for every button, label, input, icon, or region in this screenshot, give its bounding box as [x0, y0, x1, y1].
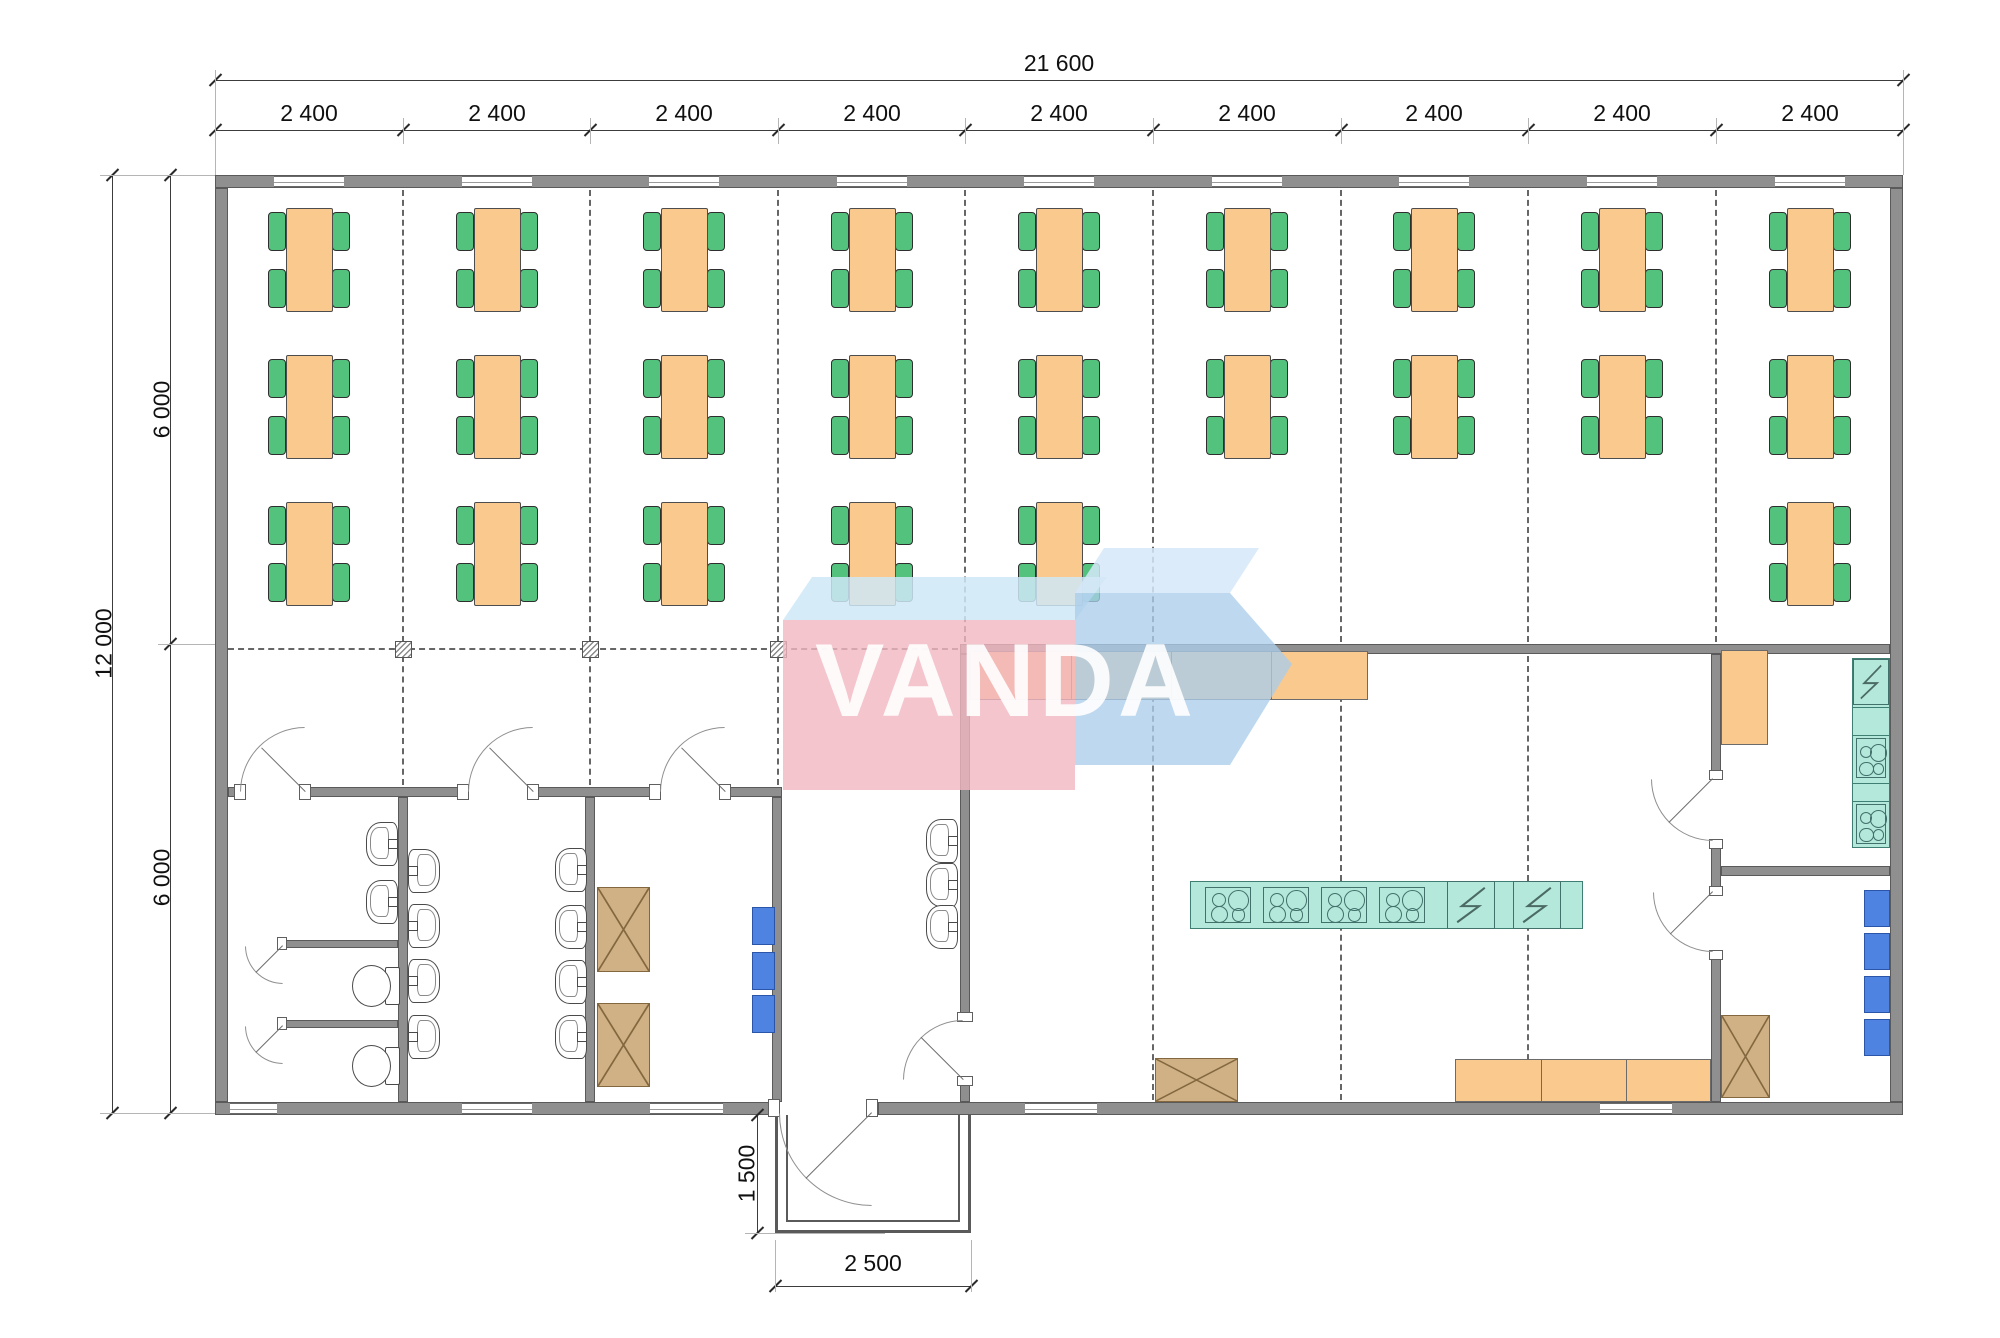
chair: [707, 563, 725, 602]
floor-plan-canvas: VANDA 21 600 12 000 6 000 6 000 1 500 2 …: [0, 0, 2000, 1338]
chair: [1018, 212, 1036, 251]
table: [1787, 355, 1834, 459]
table: [661, 355, 708, 459]
washbasin-icon: [366, 822, 396, 864]
chair: [1769, 506, 1787, 545]
dining-table-group: [643, 351, 725, 463]
chair: [332, 506, 350, 545]
table: [1224, 355, 1271, 459]
chair: [831, 416, 849, 455]
window: [1775, 176, 1845, 187]
table: [1036, 208, 1083, 312]
chair: [1082, 416, 1100, 455]
chair: [1457, 212, 1475, 251]
grid-line: [1340, 190, 1342, 642]
locker-icon: [1864, 933, 1890, 970]
wall: [1890, 188, 1903, 1102]
chair: [1833, 359, 1851, 398]
locker-icon: [1864, 976, 1890, 1013]
grid-line: [1340, 656, 1342, 1100]
wall: [305, 787, 463, 797]
chair: [520, 416, 538, 455]
dining-table-group: [643, 498, 725, 610]
dining-table-group: [1393, 204, 1475, 316]
chair: [1457, 359, 1475, 398]
window: [837, 176, 907, 187]
electric-appliance-icon: [1853, 659, 1889, 705]
cooktop-icon: [1321, 887, 1367, 923]
dimension-label-bay: 2 400: [812, 100, 932, 127]
chair: [643, 506, 661, 545]
grid-line: [964, 190, 966, 642]
washbasin-icon: [555, 1015, 585, 1057]
table: [1411, 355, 1458, 459]
dimension-porch-width: 2 500: [813, 1250, 933, 1277]
table: [1224, 208, 1271, 312]
dimension-label-bay: 2 400: [1562, 100, 1682, 127]
dimension-label-bay: 2 400: [1187, 100, 1307, 127]
dimension-guide: [215, 70, 216, 175]
cooktop-icon: [1856, 738, 1886, 778]
dining-table-group: [268, 498, 350, 610]
wall: [283, 940, 398, 948]
dimension-line: [215, 80, 1903, 81]
chair: [332, 269, 350, 308]
dining-table-group: [831, 204, 913, 316]
dimension-label-bay: 2 400: [249, 100, 369, 127]
dining-table-group: [268, 204, 350, 316]
table: [1411, 208, 1458, 312]
dining-table-group: [1769, 498, 1851, 610]
chair: [456, 563, 474, 602]
chair: [895, 506, 913, 545]
chair: [1833, 563, 1851, 602]
chair: [520, 506, 538, 545]
grid-line: [1527, 656, 1529, 1100]
table: [286, 355, 333, 459]
wall: [283, 1020, 398, 1028]
chair: [1769, 212, 1787, 251]
cooktop-icon: [1379, 887, 1425, 923]
grid-line: [589, 190, 591, 642]
window: [1587, 176, 1657, 187]
chair: [1270, 416, 1288, 455]
wall: [215, 188, 228, 1102]
chair: [707, 506, 725, 545]
dimension-guide: [158, 644, 215, 645]
dining-table-group: [268, 351, 350, 463]
dining-table-group: [456, 498, 538, 610]
washbasin-icon: [410, 959, 440, 1001]
table: [1036, 355, 1083, 459]
dimension-guide: [403, 118, 404, 144]
table: [661, 502, 708, 606]
chair: [1457, 269, 1475, 308]
chair: [1581, 269, 1599, 308]
chair: [268, 506, 286, 545]
window: [462, 1103, 532, 1114]
chair: [1645, 269, 1663, 308]
table: [1787, 208, 1834, 312]
chair: [895, 359, 913, 398]
dimension-overall-height: 12 000: [91, 594, 118, 694]
chair: [268, 212, 286, 251]
column-marker: [395, 641, 412, 658]
chair: [1581, 212, 1599, 251]
chair: [456, 212, 474, 251]
chair: [268, 416, 286, 455]
chair: [332, 416, 350, 455]
chair: [1833, 269, 1851, 308]
watermark-top-left-face: [783, 577, 1107, 620]
dimension-label-bay: 2 400: [1750, 100, 1870, 127]
chair: [1393, 359, 1411, 398]
table: [1787, 502, 1834, 606]
chair: [1270, 269, 1288, 308]
chair: [1769, 416, 1787, 455]
chair: [520, 212, 538, 251]
cooktop-icon: [1263, 887, 1309, 923]
dimension-guide: [100, 175, 170, 176]
chair: [1206, 359, 1224, 398]
table: [286, 208, 333, 312]
locker-icon: [1864, 1019, 1890, 1056]
grid-line: [402, 656, 404, 785]
table: [849, 355, 896, 459]
chair: [456, 359, 474, 398]
dimension-guide: [971, 1240, 972, 1292]
table: [1599, 355, 1646, 459]
chair: [1018, 359, 1036, 398]
chair: [1018, 416, 1036, 455]
dining-table-group: [456, 351, 538, 463]
chair: [643, 563, 661, 602]
wall: [1721, 866, 1890, 876]
electric-appliance-icon: [1513, 881, 1561, 929]
chair: [1581, 416, 1599, 455]
cabinet-icon: [1155, 1058, 1238, 1102]
cooktop-icon: [1205, 887, 1251, 923]
wall: [725, 787, 782, 797]
chair: [1645, 416, 1663, 455]
table: [1599, 208, 1646, 312]
chair: [643, 269, 661, 308]
chair: [831, 212, 849, 251]
toilet-icon: [352, 1043, 398, 1087]
cabinet-icon: [597, 887, 650, 972]
chair: [1018, 269, 1036, 308]
washbasin-icon: [555, 905, 585, 947]
dimension-label-bay: 2 400: [1374, 100, 1494, 127]
locker-icon: [752, 995, 775, 1033]
washbasin-icon: [366, 880, 396, 922]
chair: [643, 416, 661, 455]
dimension-guide: [775, 1240, 776, 1292]
chair: [1018, 506, 1036, 545]
chair: [831, 269, 849, 308]
table: [661, 208, 708, 312]
chair: [707, 212, 725, 251]
window: [649, 176, 719, 187]
chair: [643, 212, 661, 251]
dining-table-group: [1018, 351, 1100, 463]
chair: [456, 506, 474, 545]
chair: [456, 416, 474, 455]
dining-table-group: [1018, 204, 1100, 316]
watermark-text: VANDA: [786, 622, 1226, 741]
washbasin-icon: [410, 1015, 440, 1057]
dimension-line: [215, 130, 1903, 131]
chair: [1206, 212, 1224, 251]
chair: [1393, 269, 1411, 308]
chair: [520, 269, 538, 308]
chair: [895, 212, 913, 251]
counter: [1455, 1059, 1711, 1102]
chair: [1206, 416, 1224, 455]
chair: [1082, 359, 1100, 398]
porch-outline: [786, 1220, 960, 1222]
chair: [1833, 506, 1851, 545]
dimension-overall-width: 21 600: [999, 50, 1119, 77]
washbasin-icon: [926, 905, 956, 947]
washbasin-icon: [926, 863, 956, 905]
chair: [456, 269, 474, 308]
dimension-label-bay: 2 400: [437, 100, 557, 127]
watermark-top-right-face: [1075, 548, 1259, 593]
chair: [268, 269, 286, 308]
dimension-guide: [1716, 118, 1717, 144]
dining-table-group: [1581, 351, 1663, 463]
cooktop-icon: [1856, 804, 1886, 844]
dimension-guide: [745, 1233, 885, 1234]
dimension-guide: [590, 118, 591, 144]
grid-line: [777, 190, 779, 642]
toilet-icon: [352, 963, 398, 1007]
door-swing-arc: [1653, 892, 1713, 952]
dimension-guide: [778, 118, 779, 144]
table: [474, 355, 521, 459]
wall: [772, 797, 782, 1102]
dimension-label-bay: 2 400: [624, 100, 744, 127]
dimension-guide: [1903, 70, 1904, 175]
chair: [1769, 359, 1787, 398]
table: [474, 502, 521, 606]
chair: [1645, 212, 1663, 251]
washbasin-icon: [410, 904, 440, 946]
window: [1024, 176, 1094, 187]
dining-table-group: [1581, 204, 1663, 316]
window: [650, 1103, 723, 1114]
electric-appliance-icon: [1447, 881, 1495, 929]
porch-outline: [775, 1115, 778, 1233]
chair: [707, 359, 725, 398]
window: [1025, 1103, 1097, 1114]
chair: [1082, 212, 1100, 251]
dimension-guide: [1341, 118, 1342, 144]
washbasin-icon: [555, 960, 585, 1002]
dining-table-group: [643, 204, 725, 316]
dimension-left-segment-top: 6 000: [149, 360, 176, 460]
chair: [707, 269, 725, 308]
chair: [1645, 359, 1663, 398]
chair: [1082, 269, 1100, 308]
chair: [643, 359, 661, 398]
grid-line: [777, 656, 779, 785]
chair: [1833, 416, 1851, 455]
window: [230, 1103, 277, 1114]
locker-icon: [752, 952, 775, 990]
chair: [332, 563, 350, 602]
dimension-guide: [1153, 118, 1154, 144]
locker-icon: [752, 907, 775, 945]
table: [474, 208, 521, 312]
counter: [1721, 650, 1768, 745]
dining-table-group: [1206, 351, 1288, 463]
washbasin-icon: [555, 848, 585, 890]
chair: [1581, 359, 1599, 398]
dimension-line: [112, 175, 113, 1113]
table: [849, 208, 896, 312]
wall: [533, 787, 655, 797]
chair: [1082, 506, 1100, 545]
window: [1212, 176, 1282, 187]
chair: [1769, 269, 1787, 308]
dining-table-group: [831, 351, 913, 463]
chair: [895, 416, 913, 455]
chair: [332, 359, 350, 398]
window: [1600, 1103, 1672, 1114]
chair: [1833, 212, 1851, 251]
dimension-line: [775, 1286, 971, 1287]
chair: [1457, 416, 1475, 455]
dimension-left-segment-bottom: 6 000: [149, 828, 176, 928]
table: [286, 502, 333, 606]
window: [462, 176, 532, 187]
chair: [707, 416, 725, 455]
dining-table-group: [1206, 204, 1288, 316]
porch-outline: [958, 1115, 960, 1222]
wall: [1711, 842, 1721, 890]
dimension-guide: [100, 1113, 170, 1114]
chair: [332, 212, 350, 251]
dimension-guide: [965, 118, 966, 144]
porch-outline: [968, 1115, 971, 1233]
dimension-guide: [1528, 118, 1529, 144]
grid-line: [1527, 190, 1529, 642]
window: [1399, 176, 1469, 187]
chair: [268, 563, 286, 602]
dining-table-group: [456, 204, 538, 316]
grid-line: [589, 656, 591, 785]
washbasin-icon: [410, 849, 440, 891]
dimension-label-bay: 2 400: [999, 100, 1119, 127]
dimension-line: [757, 1115, 758, 1233]
chair: [895, 269, 913, 308]
wall: [585, 797, 595, 1102]
window: [274, 176, 344, 187]
cabinet-icon: [597, 1003, 650, 1087]
washbasin-icon: [926, 819, 956, 861]
wall: [1711, 953, 1721, 1102]
wall: [1711, 654, 1721, 777]
dining-table-group: [1393, 351, 1475, 463]
dining-table-group: [1769, 204, 1851, 316]
cabinet-icon: [1721, 1015, 1770, 1098]
dining-table-group: [1769, 351, 1851, 463]
grid-line: [402, 190, 404, 642]
chair: [520, 563, 538, 602]
column-marker: [582, 641, 599, 658]
chair: [520, 359, 538, 398]
chair: [831, 359, 849, 398]
chair: [1769, 563, 1787, 602]
locker-icon: [1864, 890, 1890, 927]
chair: [1270, 212, 1288, 251]
chair: [1393, 416, 1411, 455]
chair: [1393, 212, 1411, 251]
chair: [1270, 359, 1288, 398]
chair: [831, 506, 849, 545]
chair: [268, 359, 286, 398]
grid-line: [1715, 190, 1717, 642]
chair: [1206, 269, 1224, 308]
